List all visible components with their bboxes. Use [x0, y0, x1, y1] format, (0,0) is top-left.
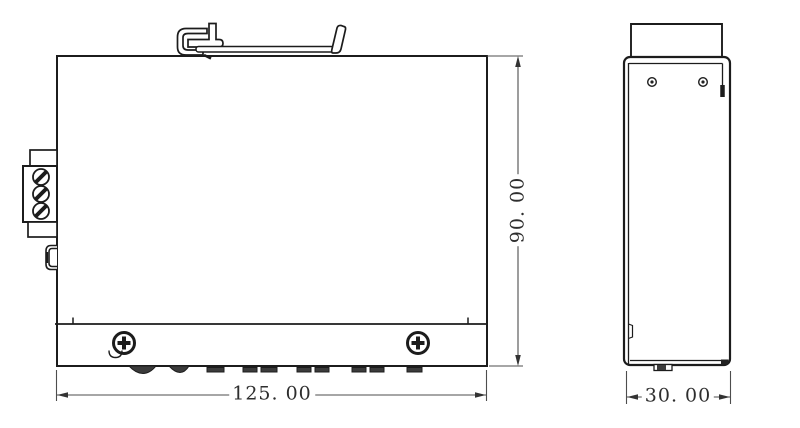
foot-slot	[261, 368, 277, 373]
arrow-left	[627, 394, 638, 400]
dimension-height-label: 90. 00	[509, 174, 528, 246]
terminal-screw-3	[33, 203, 49, 219]
front-view	[23, 24, 487, 374]
rivet-holes	[648, 78, 708, 87]
phillips-screw-right	[408, 333, 429, 354]
side-inner-lines	[629, 63, 729, 364]
din-rail-clip	[178, 24, 346, 59]
din-clip-latch	[188, 24, 223, 48]
rivet-hole-right	[699, 78, 708, 87]
foot-slot	[207, 368, 224, 373]
side-bottom-corner-mark	[721, 360, 729, 365]
mounting-feet	[129, 366, 422, 374]
foot-slot	[352, 368, 366, 373]
side-button	[46, 246, 57, 270]
foot-arc-2	[169, 366, 189, 373]
drawing-linework	[0, 0, 800, 428]
arrow-up	[515, 56, 521, 67]
terminal-step-bottom	[28, 222, 57, 237]
rivet-hole-left	[648, 78, 657, 87]
arrow-left	[57, 392, 68, 398]
dimensions	[57, 56, 731, 404]
dimension-depth-label: 30. 00	[642, 387, 714, 406]
din-clip-hook-right	[332, 25, 346, 53]
foot-arc-1	[129, 366, 156, 374]
terminal-block	[23, 150, 57, 237]
terminal-step-top	[30, 150, 57, 167]
foot-slot	[297, 368, 311, 373]
terminal-screws	[33, 169, 49, 219]
arrow-right	[475, 392, 486, 398]
terminal-screw-2	[33, 186, 49, 202]
side-body-outline	[624, 57, 730, 365]
din-clip-spring-strip	[196, 47, 334, 53]
side-top-flange	[631, 24, 722, 57]
phillips-screw-left	[114, 333, 135, 354]
arrow-right	[719, 394, 730, 400]
foot-slot	[243, 368, 257, 373]
arrow-down	[515, 355, 521, 366]
foot-slot	[370, 368, 384, 373]
side-view	[624, 24, 730, 371]
front-body-outline	[57, 56, 487, 366]
bottom-band	[55, 318, 487, 325]
side-foot-tab	[654, 365, 672, 371]
technical-drawing-canvas: 125. 00 90. 00 30. 00	[0, 0, 800, 428]
foot-slot	[407, 368, 422, 373]
terminal-screw-1	[33, 169, 49, 185]
foot-slot	[315, 368, 329, 373]
dimension-width-label: 125. 00	[229, 385, 315, 404]
